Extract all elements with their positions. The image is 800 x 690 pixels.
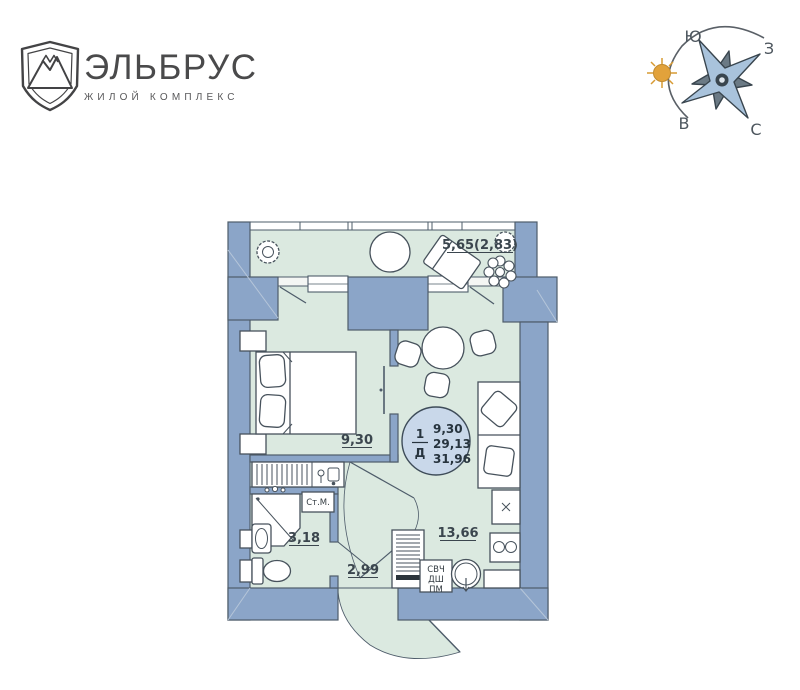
round-table-icon <box>370 232 410 272</box>
hob-icon <box>490 533 520 562</box>
living-kitchen-area-label: 13,66 <box>437 526 478 541</box>
counter-icon <box>484 570 520 588</box>
washing-machine-label: Ст.М. <box>306 498 330 508</box>
hall-wardrobe-icon <box>252 462 344 487</box>
bathroom-area-label: 3,18 <box>288 531 320 546</box>
sun-icon <box>647 58 677 88</box>
appliance-label-oven: ДШ <box>428 575 444 585</box>
balcony-glazing <box>250 222 515 230</box>
fridge-icon <box>492 490 520 524</box>
compass-rose: Ю З В С <box>647 27 774 139</box>
balcony-area-label: 5,65(2,83) <box>442 238 518 253</box>
compass-label-west: З <box>764 39 774 58</box>
badge-type-letter: Д <box>415 446 426 460</box>
appliance-label-dishwasher: ПМ <box>429 585 443 595</box>
bed-icon <box>256 352 356 434</box>
hall-area-label: 2,99 <box>347 563 379 578</box>
compass-label-north: С <box>750 120 761 139</box>
logo-shield-icon <box>22 42 78 110</box>
coat-closet-icon <box>392 530 424 588</box>
compass-label-east: В <box>679 114 690 133</box>
floor-plan: 5,65(2,83) 9,30 13,66 3,18 2,99 Ст.М. СВ… <box>228 222 557 659</box>
badge-area: 29,13 <box>433 437 471 451</box>
floorplan-canvas: Ю З В С <box>0 0 800 690</box>
nightstand-icon <box>240 331 266 351</box>
compass-label-south: Ю <box>684 27 701 46</box>
badge-living-area: 9,30 <box>433 422 463 436</box>
nightstand-icon <box>240 434 266 454</box>
bedroom-area-label: 9,30 <box>341 433 373 448</box>
apartment-info-badge: 1 Д 9,30 29,13 31,96 <box>402 407 471 475</box>
badge-total-area: 31,96 <box>433 452 471 466</box>
floorplan-page: ЭЛЬБРУС ЖИЛОЙ КОМПЛЕКС <box>0 0 800 690</box>
appliance-label-microwave: СВЧ <box>427 565 445 575</box>
sofa-icon <box>478 382 520 488</box>
compass-star-icon <box>682 40 760 118</box>
badge-type-number: 1 <box>416 427 424 441</box>
